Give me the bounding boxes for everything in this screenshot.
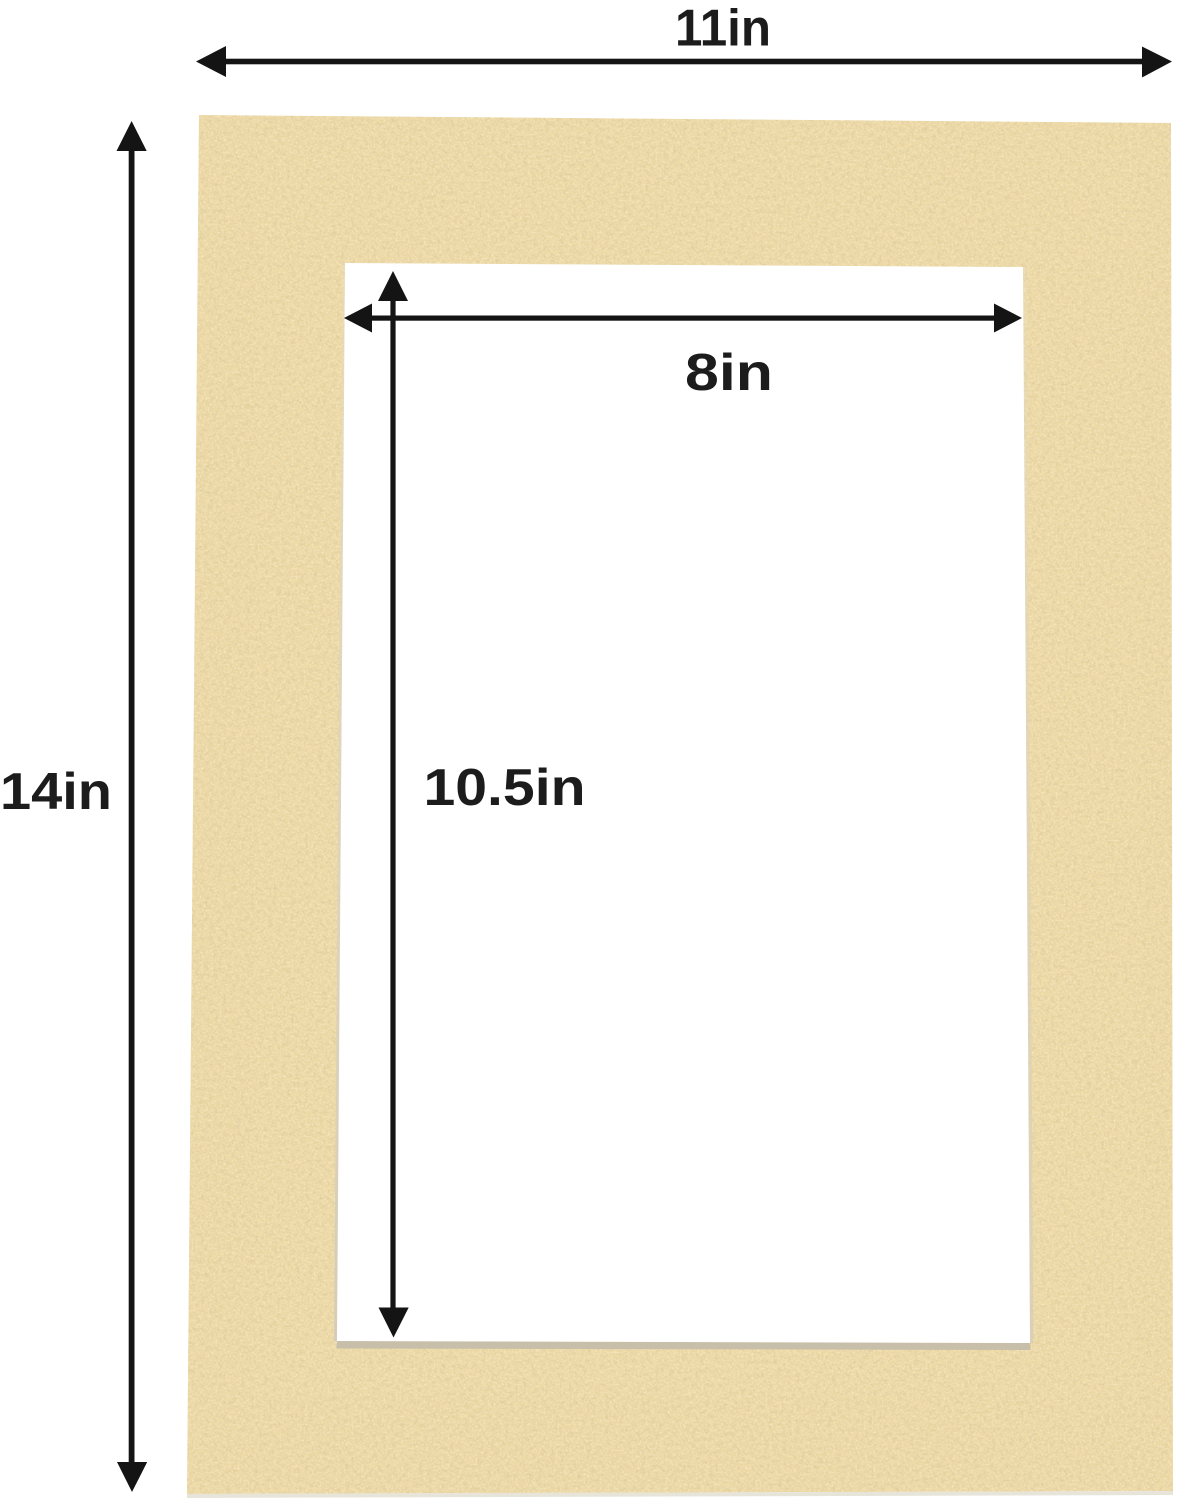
svg-text:10.5in: 10.5in: [424, 759, 586, 817]
svg-text:14in: 14in: [0, 763, 112, 821]
svg-text:11in: 11in: [675, 0, 771, 58]
svg-text:8in: 8in: [685, 344, 773, 402]
